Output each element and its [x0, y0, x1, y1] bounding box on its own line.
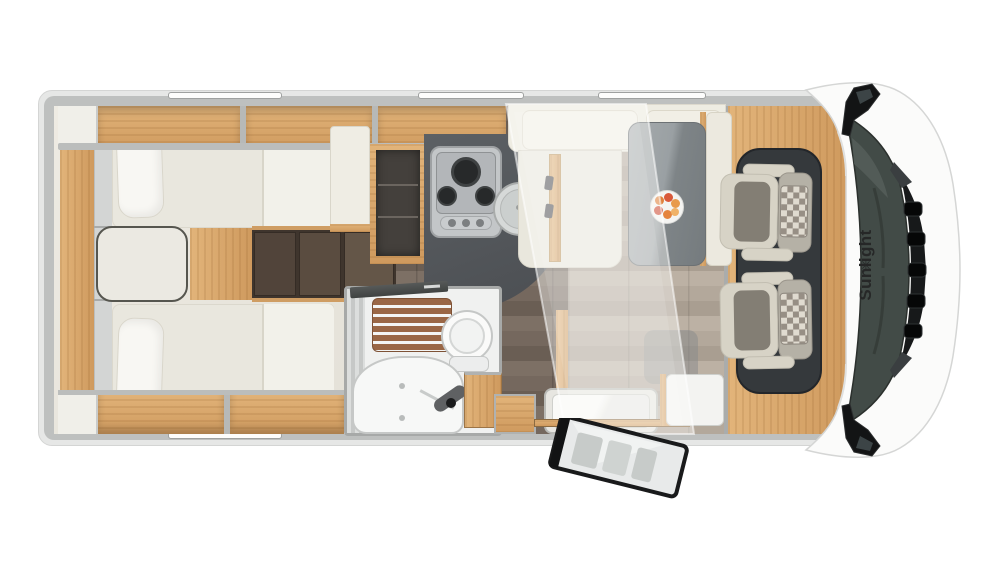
wardrobe-door-2 — [299, 232, 341, 296]
hob-knob-2 — [462, 219, 470, 227]
entry-step-cabinet — [494, 394, 536, 434]
wardrobe-door-1 — [254, 232, 296, 296]
hood-seam-line — [838, 132, 846, 408]
fridge-interior — [376, 150, 420, 256]
burner-right — [475, 186, 495, 206]
basin-drain-2 — [399, 415, 405, 421]
fridge-shelf-1 — [378, 184, 418, 186]
window-top-kitchen — [418, 92, 524, 99]
seat-cushion-inset — [733, 181, 770, 242]
rear-wall-wood-panel — [60, 106, 94, 434]
seat-armrest-bottom — [741, 248, 793, 262]
seat-cushion-inset — [733, 290, 770, 351]
middle-corner-cushion — [96, 226, 188, 302]
hob-knob-3 — [476, 219, 484, 227]
bottom-shelf-lip — [58, 390, 344, 395]
motorhome-floorplan-scene: Sunlight ✳ — [0, 0, 1000, 563]
brand-logo-rotated: Sunlight ✳ — [853, 199, 879, 331]
kitchen-sideboard — [330, 126, 370, 230]
bottom-shelf-1 — [98, 392, 224, 434]
hob-knob-1 — [448, 219, 456, 227]
basin-drain-1 — [399, 383, 405, 389]
kitchen-sideboard-edge — [330, 224, 370, 232]
overhead-corner-cabinet-bottom — [58, 390, 98, 434]
burner-large — [451, 157, 481, 187]
sun-logo-icon: ✳ — [858, 259, 875, 271]
bottom-shelf-2 — [230, 392, 344, 434]
window-top-dinette — [598, 92, 706, 99]
shower-grate — [372, 298, 452, 352]
entry-door-open — [540, 418, 720, 513]
cab-front-graphic — [790, 78, 980, 462]
burner-left — [437, 186, 457, 206]
toilet-seat-ring — [449, 318, 485, 354]
fruit-3 — [671, 199, 680, 208]
middle-step — [190, 228, 252, 300]
seat-armrest-bottom — [743, 356, 795, 370]
window-top-rear — [168, 92, 282, 99]
fruit-6 — [671, 208, 679, 216]
fridge-shelf-2 — [378, 216, 418, 218]
bench-headrest-1 — [522, 110, 638, 150]
brand-logo: Sunlight ✳ — [852, 202, 880, 328]
fruit-1 — [655, 196, 664, 205]
fruit-4 — [654, 206, 663, 215]
dinette-bench — [518, 150, 622, 268]
basin-faucet-dot — [446, 398, 456, 408]
